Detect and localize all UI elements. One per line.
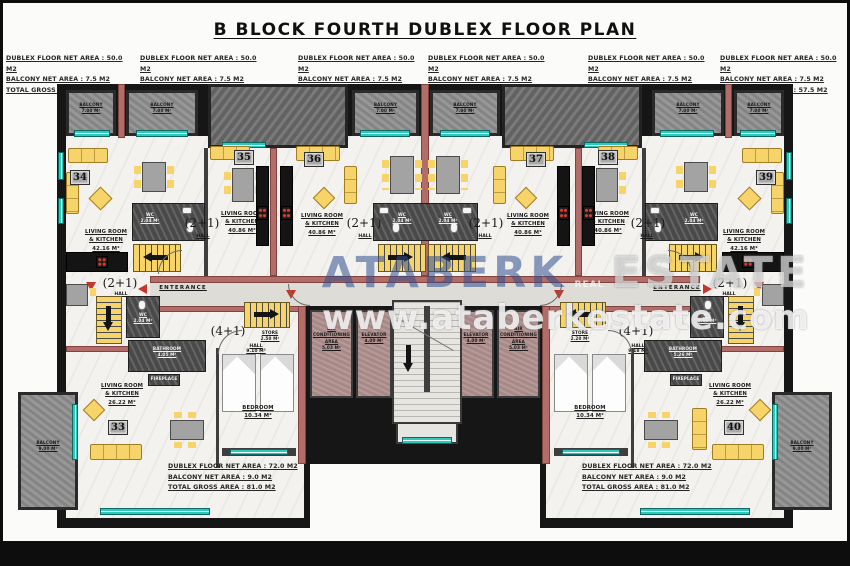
page-title: B BLOCK FOURTH DUBLEX FLOOR PLAN <box>0 20 850 40</box>
stat-floor-area: DUBLEX FLOOR NET AREA : 50.0 M2 <box>428 54 554 75</box>
down-arrow-icon <box>103 322 113 331</box>
cooktop-icon <box>257 206 268 220</box>
living-room-label: LIVING ROOM & KITCHEN 42.16 M² <box>716 228 772 253</box>
toilet-icon <box>704 300 712 310</box>
upper-structure-block <box>208 84 348 148</box>
balcony-label: BALCONY 7.00 M² <box>352 102 419 115</box>
hall-label: HALL <box>190 234 216 239</box>
unit-plate: 33 <box>108 420 128 435</box>
dining-chairs <box>415 160 422 190</box>
bathroom-label: BATHROOM 4.05 M² <box>132 346 202 359</box>
bathroom-label: BATHROOM 5.26 M² <box>648 346 718 359</box>
sofa <box>344 166 357 204</box>
unit-plate: 40 <box>724 420 744 435</box>
dining-chairs <box>754 288 760 302</box>
air-conditioning-label: AIR CONDITIONING AREA 5.03 M² <box>311 326 352 351</box>
window-sill <box>440 130 490 137</box>
dining-chairs <box>167 166 174 188</box>
living-room-label: LIVING ROOM & KITCHEN 40.86 M² <box>296 212 348 237</box>
stat-floor-area: DUBLEX FLOOR NET AREA : 50.0 M2 <box>720 54 846 75</box>
small-table <box>762 284 784 306</box>
right-arrow-icon <box>404 252 413 262</box>
air-conditioning-room <box>310 310 353 398</box>
dining-chairs <box>676 166 683 188</box>
living-room-label: LIVING ROOM & KITCHEN 42.16 M² <box>78 228 134 253</box>
dining-table <box>390 156 414 194</box>
window-sill <box>740 130 776 137</box>
sink-icon <box>182 207 192 214</box>
dining-table <box>684 162 708 192</box>
stat-gross-area: TOTAL GROSS AREA : 81.0 M2 <box>582 483 762 494</box>
dining-chairs <box>428 160 435 190</box>
unit-type-label: (2+1) <box>468 216 504 230</box>
dining-chairs <box>174 442 200 448</box>
unit-plate: 35 <box>234 150 254 165</box>
living-room-label: LIVING ROOM & KITCHEN 26.22 M² <box>700 382 760 407</box>
wc-label: WC 2.04 M² <box>128 312 158 325</box>
stat-floor-area: DUBLEX FLOOR NET AREA : 72.0 M2 <box>168 462 348 473</box>
window-sill <box>360 130 410 137</box>
living-room-label: LIVING ROOM & KITCHEN 26.22 M² <box>92 382 152 407</box>
unit-plate: 34 <box>70 170 90 185</box>
sofa <box>493 166 506 204</box>
window-sill <box>660 130 714 137</box>
elevator-label: ELEVATOR 4.00 M² <box>459 332 493 345</box>
window-sill <box>230 449 288 455</box>
small-table <box>66 284 88 306</box>
dining-chairs <box>619 172 626 198</box>
enterance-label: ENTERANCE <box>152 285 214 291</box>
window-sill <box>136 130 188 137</box>
stat-gross-area: TOTAL GROSS AREA : 81.0 M2 <box>168 483 348 494</box>
dining-table <box>170 420 204 440</box>
unit-type-label: (2+1) <box>630 216 666 230</box>
window-sill <box>58 152 64 180</box>
dining-table <box>644 420 678 440</box>
dining-chairs <box>224 172 231 198</box>
sofa <box>692 408 707 450</box>
stat-floor-area: DUBLEX FLOOR NET AREA : 50.0 M2 <box>6 54 132 75</box>
wc-label: WC 2.66 M² <box>692 312 722 325</box>
stat-floor-area: DUBLEX FLOOR NET AREA : 50.0 M2 <box>588 54 714 75</box>
cooktop-icon <box>583 206 594 220</box>
balcony-label: BALCONY 7.00 M² <box>430 102 500 115</box>
sink-icon <box>462 207 472 214</box>
unit-plate: 38 <box>598 150 618 165</box>
hall-label: HALL <box>352 234 378 239</box>
down-arrow-icon <box>403 363 413 372</box>
store-label: STORE 2.50 M² <box>250 330 290 343</box>
hall-label: HALL 9.10 M² <box>236 344 276 354</box>
window-sill <box>72 404 78 460</box>
stair-arrow-icon <box>254 312 270 317</box>
dining-chairs <box>461 160 468 190</box>
bedroom-label: BEDROOM 10.34 M² <box>230 404 286 421</box>
right-arrow-icon <box>695 252 704 262</box>
window-sill <box>786 152 792 180</box>
hall-label: HALL <box>472 234 498 239</box>
stair-divider-wall <box>424 306 430 392</box>
stair-arrow-icon <box>450 255 466 260</box>
hall-label: HALL <box>634 234 660 239</box>
sofa <box>68 148 108 163</box>
dining-chairs <box>648 412 674 418</box>
window-sill <box>58 198 64 224</box>
left-arrow-icon <box>441 252 450 262</box>
down-arrow-icon <box>735 322 745 331</box>
dining-chairs <box>648 442 674 448</box>
balcony-label: BALCONY 9.00 M² <box>776 440 828 453</box>
unit-type-label: (2+1) <box>184 216 220 230</box>
dining-table <box>436 156 460 194</box>
dining-chairs <box>709 166 716 188</box>
fireplace-label: FIREPLACE <box>670 376 702 382</box>
wc-label: WC 2.04 M² <box>388 212 416 225</box>
unit-type-label: (2+1) <box>100 276 140 290</box>
floor-plan-canvas: B BLOCK FOURTH DUBLEX FLOOR PLAN DUBLEX … <box>0 0 850 566</box>
elevator-room <box>458 310 494 398</box>
fireplace-label: FIREPLACE <box>148 376 180 382</box>
unit-type-label: (2+1) <box>346 216 382 230</box>
left-arrow-icon <box>143 252 152 262</box>
upper-structure-block <box>502 84 642 148</box>
elevator-room <box>356 310 392 398</box>
dining-table <box>232 168 254 202</box>
wall <box>298 306 306 464</box>
right-arrow-icon <box>270 309 279 319</box>
dining-chairs <box>382 160 389 190</box>
wall <box>216 348 219 468</box>
dining-table <box>596 168 618 202</box>
cooktop-icon <box>558 206 569 220</box>
unit-plate: 37 <box>526 152 546 167</box>
stair-arrow-icon <box>406 345 411 363</box>
unit-plate: 36 <box>304 152 324 167</box>
stat-balcony-area: BALCONY NET AREA : 9.0 M2 <box>168 473 348 484</box>
dining-table <box>142 162 166 192</box>
cooktop-icon <box>281 206 292 220</box>
corridor-wall <box>150 276 700 283</box>
stair-arrow-icon <box>106 306 111 322</box>
wall <box>631 348 634 468</box>
wc-label: WC 2.04 M² <box>434 212 462 225</box>
air-conditioning-label: AIR CONDITIONING AREA 5.03 M² <box>498 326 539 351</box>
cooktop-icon <box>742 256 754 268</box>
balcony-label: BALCONY 9.00 M² <box>22 440 74 453</box>
wall <box>575 148 582 276</box>
wall <box>725 84 732 138</box>
window-sill <box>772 404 778 460</box>
stair-arrow-icon <box>388 255 404 260</box>
window-sill <box>74 130 110 137</box>
balcony-label: BALCONY 7.00 M² <box>66 102 116 115</box>
balcony-label: BALCONY 7.00 M² <box>652 102 724 115</box>
sofa <box>712 444 764 460</box>
unit-plate: 39 <box>756 170 776 185</box>
stat-floor-area: DUBLEX FLOOR NET AREA : 50.0 M2 <box>140 54 266 75</box>
window-sill <box>562 449 620 455</box>
sofa <box>90 444 142 460</box>
sofa <box>742 148 782 163</box>
bedroom-label: BEDROOM 10.34 M² <box>562 404 618 421</box>
cooktop-icon <box>96 256 108 268</box>
wall <box>542 306 550 464</box>
window-sill <box>786 198 792 224</box>
stat-floor-area: DUBLEX FLOOR NET AREA : 72.0 M2 <box>582 462 762 473</box>
balcony-label: BALCONY 7.00 M² <box>126 102 198 115</box>
left-arrow-icon <box>567 309 576 319</box>
stair-arrow-icon <box>738 306 743 322</box>
window-sill <box>100 508 210 515</box>
store-label: STORE 2.20 M² <box>560 330 600 343</box>
dining-chairs <box>134 166 141 188</box>
stats-block-bottom: DUBLEX FLOOR NET AREA : 72.0 M2 BALCONY … <box>582 462 762 494</box>
wall <box>118 84 125 138</box>
dining-chairs <box>174 412 200 418</box>
living-room-label: LIVING ROOM & KITCHEN 40.86 M² <box>502 212 554 237</box>
enterance-label: ENTERANCE <box>646 285 708 291</box>
stair-arrow-icon <box>576 312 592 317</box>
wall <box>270 148 277 276</box>
window-sill <box>640 508 750 515</box>
unit-type-label: (2+1) <box>710 276 750 290</box>
wc-label: WC 2.04 M² <box>134 212 166 225</box>
sink-icon <box>650 207 660 214</box>
stat-balcony-area: BALCONY NET AREA : 9.0 M2 <box>582 473 762 484</box>
stats-block-bottom: DUBLEX FLOOR NET AREA : 72.0 M2 BALCONY … <box>168 462 348 494</box>
elevator-label: ELEVATOR 4.00 M² <box>357 332 391 345</box>
air-conditioning-room <box>497 310 540 398</box>
toilet-icon <box>138 300 146 310</box>
balcony-label: BALCONY 7.00 M² <box>734 102 784 115</box>
window-sill <box>402 437 452 444</box>
wc-label: WC 2.04 M² <box>678 212 710 225</box>
stat-floor-area: DUBLEX FLOOR NET AREA : 50.0 M2 <box>298 54 424 75</box>
